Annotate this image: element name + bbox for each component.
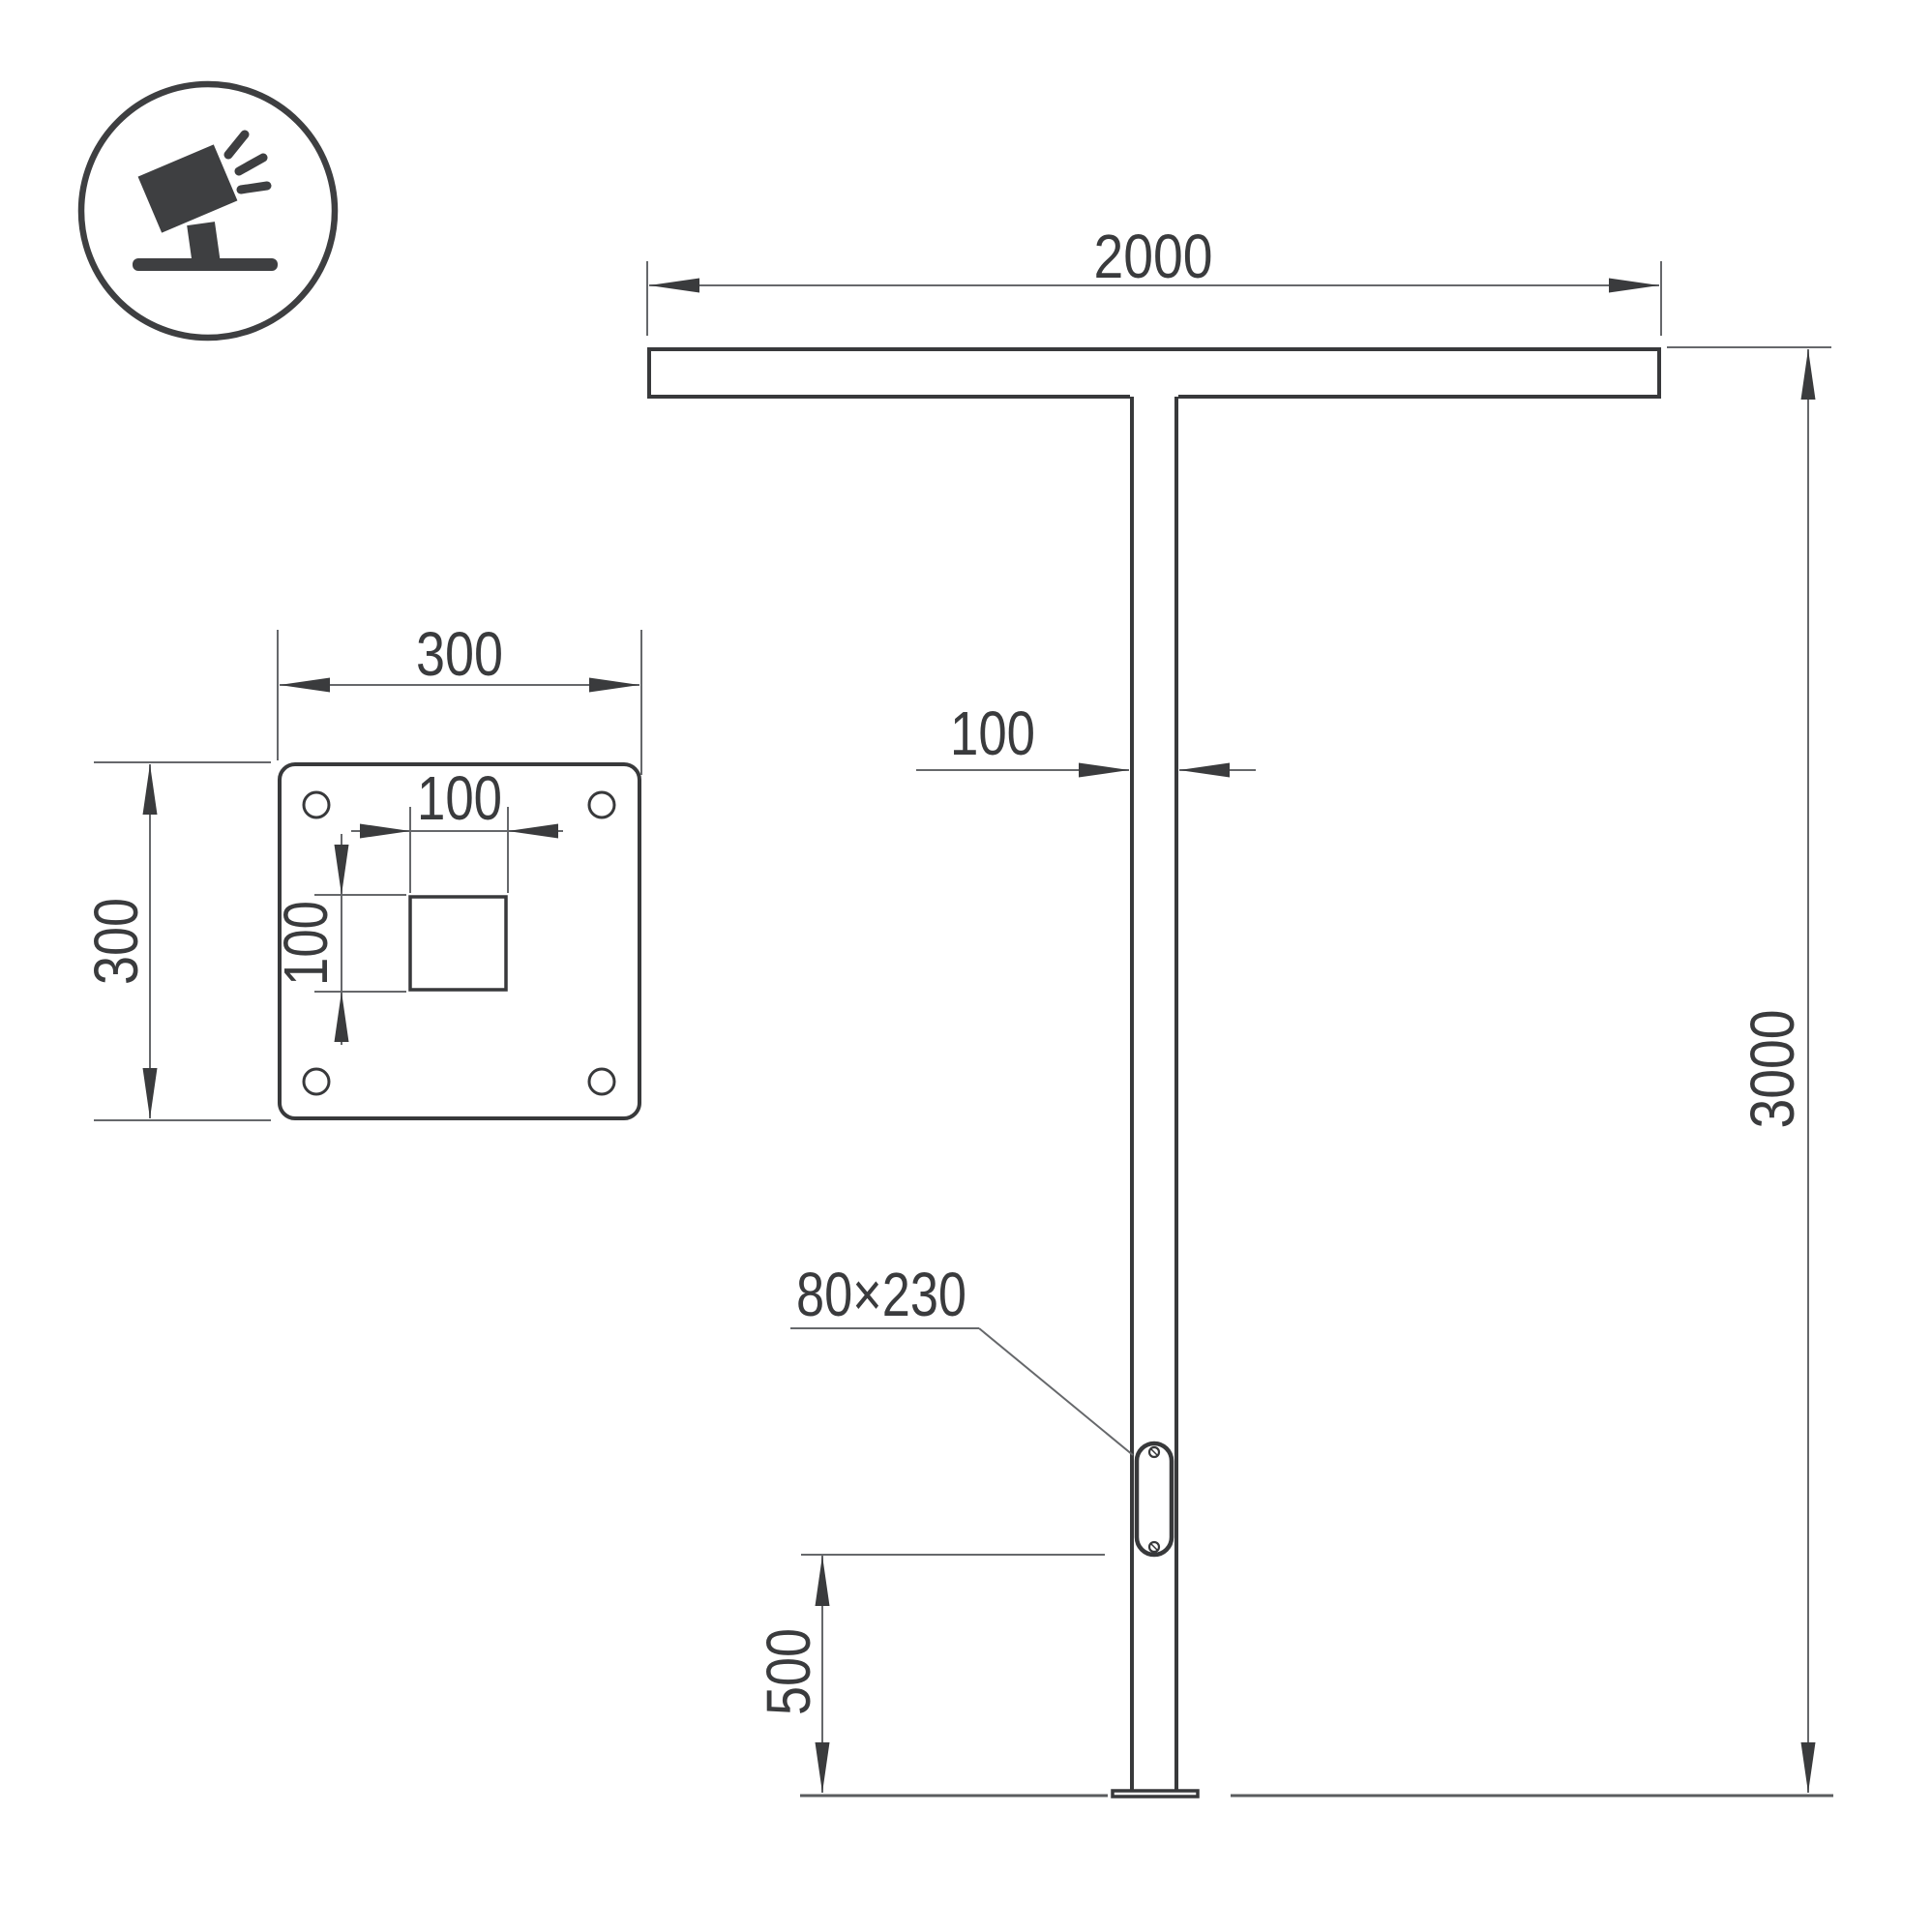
front-view: 2000 100 3000 500 <box>647 222 1833 1797</box>
floodlight-base <box>133 258 278 271</box>
arrowhead <box>1179 763 1230 778</box>
arrowhead <box>649 279 699 293</box>
door-size-label: 80×230 <box>796 1260 966 1329</box>
dim-plate-width-label: 300 <box>416 619 503 689</box>
dimension-plate-height: 300 <box>81 762 271 1120</box>
floodlight-head <box>138 144 238 232</box>
service-door <box>1137 1443 1172 1555</box>
base-plate-top-view: 300 300 100 100 <box>81 619 641 1120</box>
dimension-crossbar-length: 2000 <box>647 222 1661 336</box>
arrowhead <box>816 1556 830 1606</box>
leader-line <box>979 1328 1133 1455</box>
dim-cutout-width-label: 100 <box>417 763 502 833</box>
arrowhead <box>1801 1742 1816 1793</box>
door-size-callout: 80×230 <box>790 1260 1133 1455</box>
drawing-page: 2000 100 3000 500 <box>0 0 1932 1932</box>
dim-plate-height-label: 300 <box>81 898 151 985</box>
dim-crossbar-length-label: 2000 <box>1094 222 1213 291</box>
floodlight-icon <box>81 84 335 338</box>
arrowhead <box>589 678 639 693</box>
dim-cutout-height-label: 100 <box>271 901 341 986</box>
bolt-hole <box>589 792 614 817</box>
arrowhead <box>1079 763 1129 778</box>
bolt-hole <box>304 1069 329 1094</box>
dimension-door-offset: 500 <box>754 1555 1105 1793</box>
technical-drawing: 2000 100 3000 500 <box>0 0 1932 1932</box>
crossbar-outline <box>649 349 1659 397</box>
light-ray-icon <box>228 134 245 155</box>
dimension-pole-width: 100 <box>916 698 1256 778</box>
dim-door-offset-label: 500 <box>754 1628 823 1715</box>
dim-pole-height-label: 3000 <box>1738 1010 1807 1129</box>
arrowhead <box>1801 349 1816 400</box>
arrowhead <box>280 678 330 693</box>
arrowhead <box>1609 279 1659 293</box>
base-flange <box>1113 1791 1198 1797</box>
dimension-pole-height: 3000 <box>1667 347 1831 1793</box>
arrowhead <box>143 764 158 815</box>
bolt-hole <box>304 792 329 817</box>
arrowhead <box>816 1742 830 1793</box>
dimension-plate-width: 300 <box>278 619 641 775</box>
light-ray-icon <box>241 186 267 190</box>
square-cutout <box>410 897 506 990</box>
bolt-hole <box>589 1069 614 1094</box>
light-ray-icon <box>239 158 263 171</box>
dim-pole-width-label: 100 <box>950 698 1035 768</box>
arrowhead <box>143 1068 158 1118</box>
